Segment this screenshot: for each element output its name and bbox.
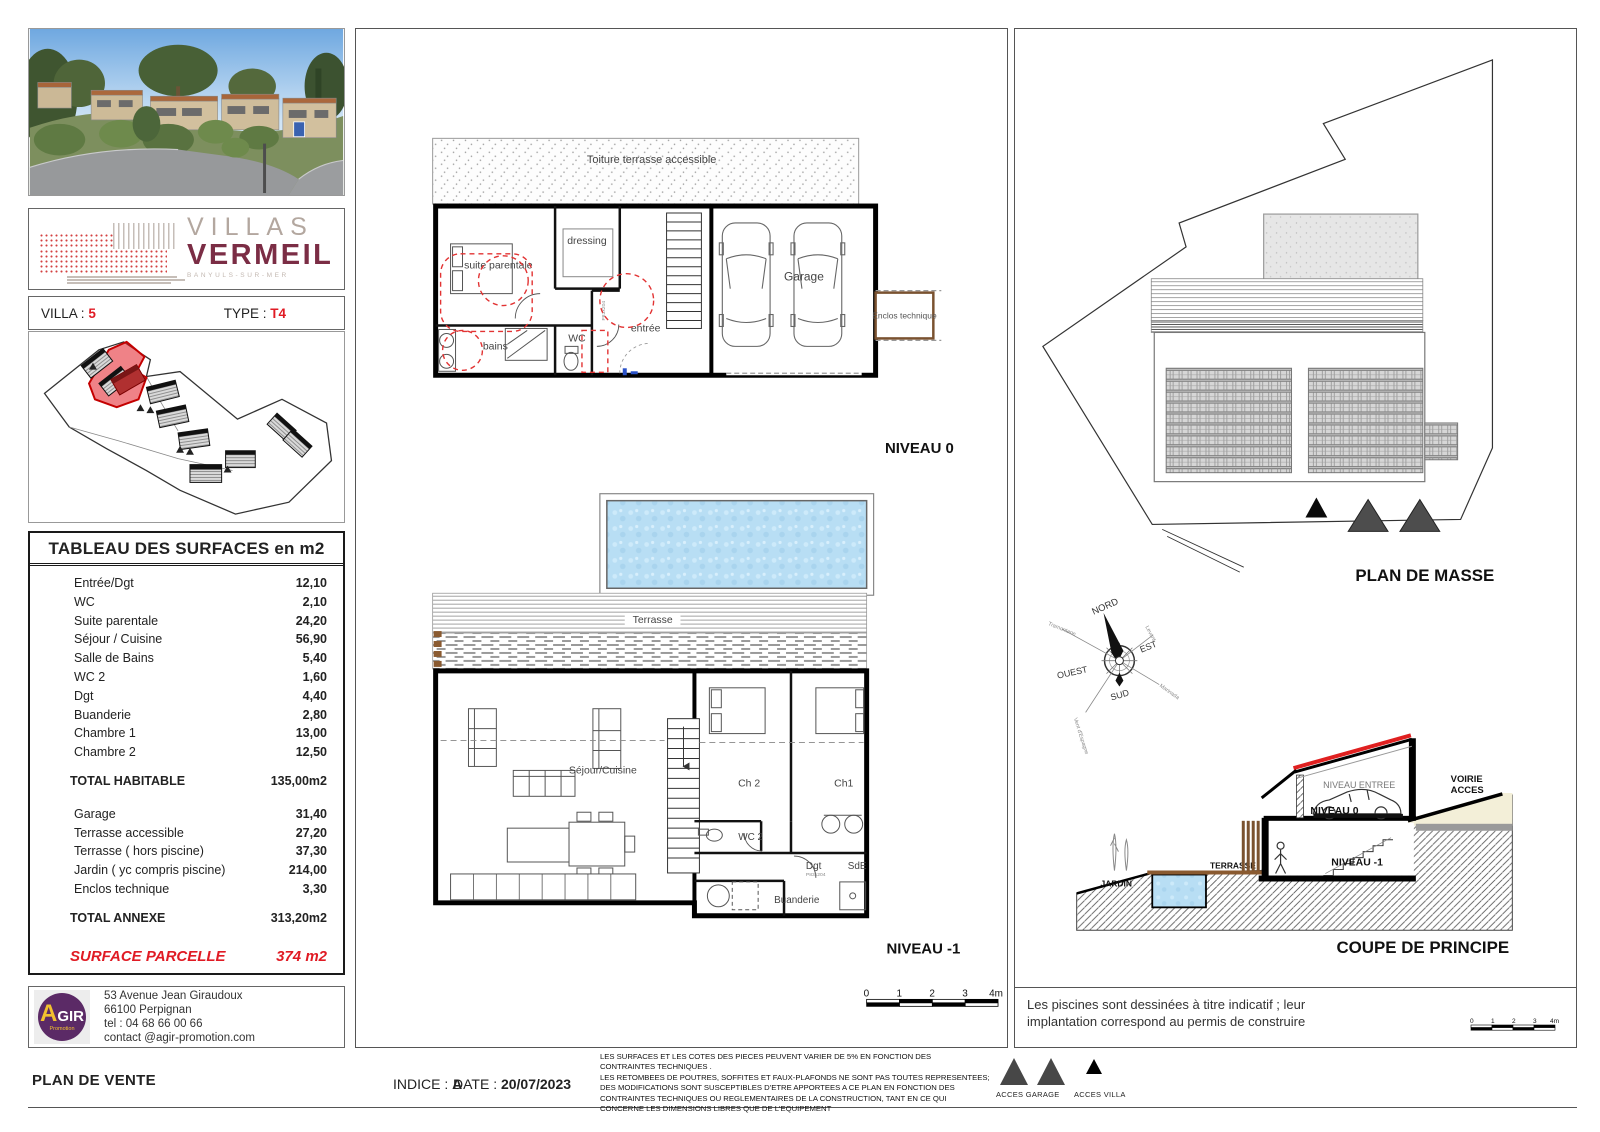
villa-type-row: VILLA : 5 TYPE : T4 — [28, 296, 345, 330]
compass-est: EST — [1138, 639, 1158, 655]
niveau-moins-1-plan: Terrasse — [433, 494, 961, 958]
surface-row: Chambre 113,00 — [30, 724, 343, 743]
svg-text:3: 3 — [1533, 1018, 1537, 1025]
coupe-niveau0-label: NIVEAU 0 — [1310, 806, 1358, 817]
piscine — [607, 501, 867, 589]
acces-garage-label: ACCES GARAGE — [996, 1090, 1060, 1099]
plan-de-masse: PLAN DE MASSE — [1043, 60, 1494, 585]
ch1-label: Ch1 — [834, 778, 853, 789]
site-photo — [28, 28, 345, 196]
wc-label: WC — [568, 333, 586, 344]
annex-row: Terrasse ( hors piscine)37,30 — [30, 842, 343, 861]
compass-wind-sw: Vent d'Espagne — [1072, 717, 1089, 755]
svg-text:0: 0 — [1470, 1018, 1474, 1025]
annex-row: Enclos technique3,30 — [30, 880, 343, 899]
surface-row: Entrée/Dgt12,10 — [30, 574, 343, 593]
contact-address2: 66100 Perpignan — [104, 1003, 255, 1017]
type-value: T4 — [270, 306, 286, 321]
buanderie-label: Buanderie — [774, 895, 820, 906]
ch2-label: Ch 2 — [738, 778, 760, 789]
toiture-label: Toiture terrasse accessible — [587, 154, 716, 166]
legal-fine-print: LES SURFACES ET LES COTES DES PIECES PEU… — [600, 1052, 1000, 1114]
compass-sud: SUD — [1109, 687, 1130, 702]
site-photo-art — [29, 29, 344, 195]
svg-text:1: 1 — [1491, 1018, 1495, 1025]
villa-label: VILLA : — [41, 306, 85, 321]
terrasse-label: Terrasse — [633, 615, 673, 626]
coupe-de-principe: JARDIN TERRASSE — [1077, 735, 1513, 957]
niveau1-title: NIVEAU -1 — [886, 941, 960, 958]
compass-wind-nw: Tramontane — [1047, 621, 1076, 638]
coupe-niveau-entree-label: NIVEAU ENTREE — [1323, 780, 1395, 790]
logo-dot-pattern — [39, 233, 113, 249]
sde-label: SdE — [848, 861, 867, 872]
stairs-niveau0 — [667, 213, 702, 328]
type-label: TYPE : — [224, 306, 267, 321]
svg-text:2: 2 — [1512, 1018, 1516, 1025]
acces-villa-label: ACCES VILLA — [1074, 1090, 1126, 1099]
niveau0-plan: Toiture terrasse accessible dressing — [433, 138, 954, 457]
wc2-label: WC 2 — [738, 832, 763, 843]
pool-note-line2: implantation correspond au permis de con… — [1027, 1013, 1305, 1030]
door-tag: P83x204 — [806, 872, 826, 878]
entree-label: entrée — [631, 323, 661, 334]
mini-site-plan — [28, 331, 345, 523]
date-value: 20/07/2023 — [501, 1076, 571, 1092]
floorplans-drawing: Toiture terrasse accessible dressing — [356, 29, 1006, 1046]
masse-terrace-band — [1151, 279, 1423, 321]
contact-phone: tel : 04 68 66 00 66 — [104, 1017, 255, 1031]
villas-vermeil-logo: VILLAS VERMEIL BANYULS-SUR-MER — [28, 208, 345, 290]
villa-label-group: VILLA : 5 — [41, 306, 96, 321]
surface-row: Suite parentale24,20 — [30, 612, 343, 631]
annex-row: Terrasse accessible27,20 — [30, 824, 343, 843]
surface-row: WC 21,60 — [30, 668, 343, 687]
surface-row: Chambre 212,50 — [30, 743, 343, 762]
compass-rose: NORD EST SUD OUEST Tramontane Levant Mar… — [1047, 596, 1181, 755]
stairs-niveau1 — [668, 719, 700, 873]
surface-table: TABLEAU DES SURFACES en m2 Entrée/Dgt12,… — [28, 531, 345, 975]
masse-annex-roof — [1425, 423, 1458, 460]
compass-wind-ne: Levant — [1144, 625, 1157, 643]
voirie-label-1: VOIRIE — [1451, 774, 1483, 785]
scale-bar-small: 0 1 2 3 4m — [1462, 1016, 1562, 1038]
masse-coupe-panel: PLAN DE MASSE NORD EST SUD — [1014, 28, 1577, 1048]
pool-note-line1: Les piscines sont dessinées à titre indi… — [1027, 996, 1305, 1013]
surface-parcelle-row: SURFACE PARCELLE374 m2 — [30, 948, 343, 967]
total-annexe-row: TOTAL ANNEXE313,20m2 — [30, 909, 343, 928]
mini-site-plan-art — [29, 332, 344, 522]
compass-wind-se: Marinada — [1158, 683, 1181, 702]
sejour-label: Séjour/Cuisine — [569, 765, 637, 776]
agir-logo: AGIR Promotion — [34, 990, 90, 1044]
floorplans-panel: Toiture terrasse accessible dressing — [355, 28, 1008, 1048]
coupe-title: COUPE DE PRINCIPE — [1336, 938, 1509, 957]
coupe-piscine — [1152, 875, 1206, 908]
surface-row: WC2,10 — [30, 593, 343, 612]
acces-garage-triangle — [1000, 1058, 1028, 1085]
masse-roof-left — [1166, 368, 1291, 472]
scale-bar-plans: 0 1 2 3 4m — [864, 988, 1003, 1006]
indice-field: INDICE : A — [393, 1076, 462, 1092]
logo-dot-pattern — [39, 249, 167, 275]
svg-text:1: 1 — [897, 988, 903, 999]
surface-row: Séjour / Cuisine56,90 — [30, 630, 343, 649]
contact-address1: 53 Avenue Jean Giraudoux — [104, 989, 255, 1003]
bains-label: bains — [483, 341, 508, 352]
svg-text:4m: 4m — [1550, 1018, 1559, 1025]
jardin-label: JARDIN — [1101, 878, 1132, 888]
contact-email[interactable]: contact @agir-promotion.com — [104, 1031, 255, 1045]
dgt-label: Dgt — [806, 861, 822, 872]
total-habitable-row: TOTAL HABITABLE135,00m2 — [30, 772, 343, 791]
logo-line1: VILLAS — [187, 215, 333, 240]
promoter-contact-card: AGIR Promotion 53 Avenue Jean Giraudoux … — [28, 986, 345, 1048]
plan-de-masse-title: PLAN DE MASSE — [1355, 566, 1494, 585]
plan-de-vente-sheet: VILLAS VERMEIL BANYULS-SUR-MER VILLA : 5… — [0, 0, 1600, 1132]
masse-coupe-drawing: PLAN DE MASSE NORD EST SUD — [1015, 29, 1575, 986]
pool-note-box: Les piscines sont dessinées à titre indi… — [1015, 987, 1576, 1047]
type-label-group: TYPE : T4 — [224, 306, 286, 321]
cypress-trees — [1110, 834, 1127, 871]
logo-line2: VERMEIL — [187, 241, 333, 270]
surface-row: Dgt4,40 — [30, 687, 343, 706]
date-field: DATE : 20/07/2023 — [453, 1076, 571, 1092]
villa-number: 5 — [88, 306, 96, 321]
enclos-label: Enclos technique — [872, 311, 937, 321]
dressing-label: dressing — [567, 236, 607, 247]
surface-row: Salle de Bains5,40 — [30, 649, 343, 668]
svg-text:3: 3 — [962, 988, 968, 999]
surface-table-title: TABLEAU DES SURFACES en m2 — [30, 533, 343, 566]
title-block-bar: PLAN DE VENTE INDICE : A DATE : 20/07/20… — [28, 1048, 1577, 1108]
suite-label: suite parentale — [464, 261, 533, 272]
compass-ouest: OUEST — [1056, 664, 1089, 680]
annex-row: Garage31,40 — [30, 805, 343, 824]
annex-row: Jardin ( yc compris piscine)214,00 — [30, 861, 343, 880]
sheet-title: PLAN DE VENTE — [32, 1072, 156, 1089]
surface-row: Buanderie2,80 — [30, 706, 343, 725]
coupe-niveau-m1-label: NIVEAU -1 — [1331, 858, 1383, 869]
masse-roof-right — [1308, 368, 1422, 472]
compass-nord: NORD — [1090, 596, 1120, 617]
svg-text:2: 2 — [929, 988, 935, 999]
voirie-label-2: ACCES — [1451, 785, 1484, 796]
svg-text:0: 0 — [864, 988, 870, 999]
logo-subtitle: BANYULS-SUR-MER — [187, 273, 333, 280]
niveau0-title: NIVEAU 0 — [885, 440, 954, 457]
garage-label: Garage — [784, 270, 824, 284]
logo-stripe-pattern — [113, 223, 177, 249]
acces-garage-triangle — [1037, 1058, 1065, 1085]
acces-villa-triangle — [1086, 1059, 1102, 1074]
svg-text:4m: 4m — [989, 988, 1003, 999]
